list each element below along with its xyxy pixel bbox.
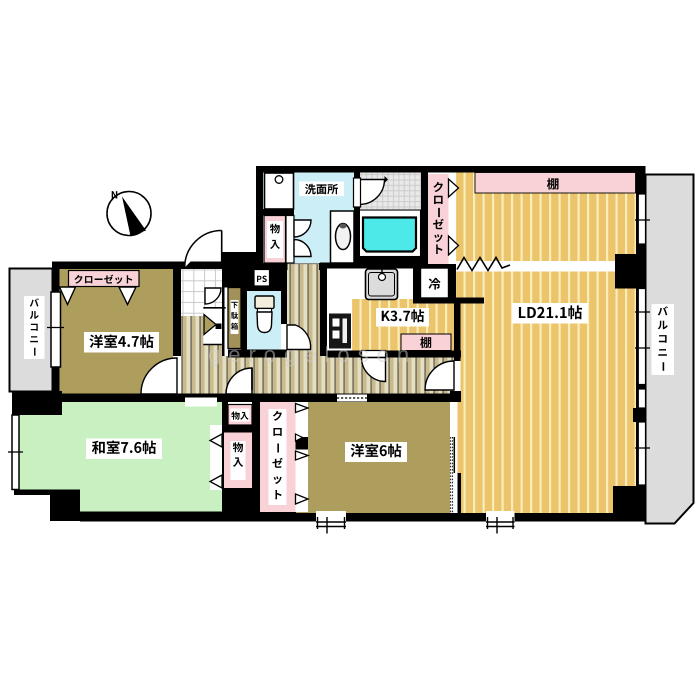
- svg-text:gerogeloson: gerogeloson: [208, 342, 417, 367]
